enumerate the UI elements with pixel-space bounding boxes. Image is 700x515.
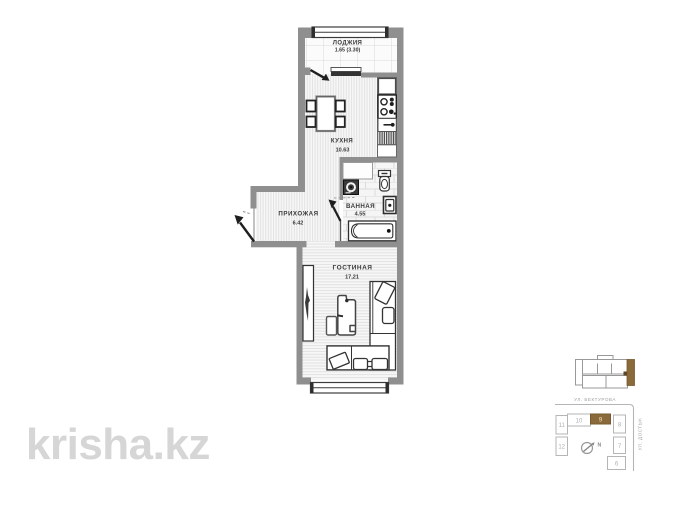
svg-text:N: N	[598, 443, 602, 449]
svg-text:УЛ. БЕКТУРОВА: УЛ. БЕКТУРОВА	[574, 397, 616, 402]
svg-text:КУХНЯ: КУХНЯ	[331, 139, 353, 145]
svg-text:ЛОДЖИЯ: ЛОДЖИЯ	[333, 41, 363, 47]
svg-text:УЛ. ДОСТЫК: УЛ. ДОСТЫК	[638, 418, 643, 451]
svg-text:1.65 (3.30): 1.65 (3.30)	[335, 48, 361, 54]
svg-text:4.55: 4.55	[355, 212, 366, 218]
svg-text:17,21: 17,21	[345, 275, 359, 281]
svg-text:krisha.kz: krisha.kz	[26, 420, 210, 469]
svg-text:6.42: 6.42	[293, 221, 304, 227]
svg-text:10: 10	[576, 419, 583, 425]
svg-text:10.63: 10.63	[336, 148, 350, 154]
svg-text:ВАННАЯ: ВАННАЯ	[346, 203, 375, 210]
svg-text:12: 12	[558, 445, 565, 451]
svg-text:ПРИХОЖАЯ: ПРИХОЖАЯ	[278, 211, 318, 218]
svg-text:11: 11	[559, 423, 566, 429]
svg-text:ГОСТИНАЯ: ГОСТИНАЯ	[333, 265, 373, 272]
